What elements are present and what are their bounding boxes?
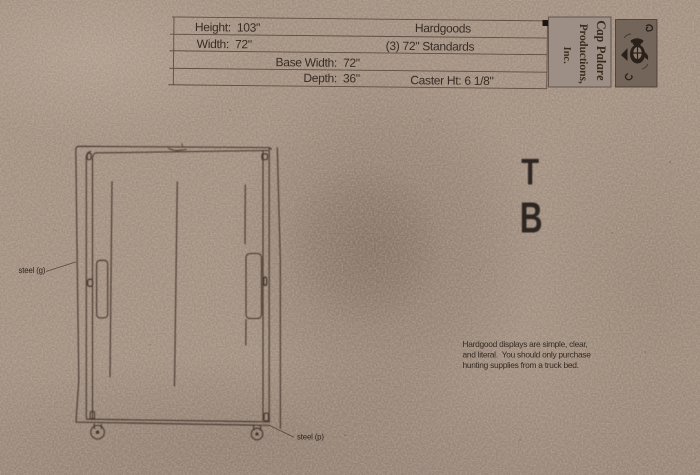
svg-text:Hardgood displays are simple,: Hardgood displays are simple, clear, [463, 339, 588, 349]
svg-text:B: B [520, 193, 543, 242]
svg-text:hunting supplies from a truck: hunting supplies from a truck bed. [463, 360, 579, 370]
svg-text:Cap Palare: Cap Palare [594, 19, 609, 82]
svg-text:steel (p): steel (p) [297, 432, 324, 441]
svg-text:Hardgoods: Hardgoods [415, 21, 471, 36]
svg-text:Productions,: Productions, [577, 23, 589, 85]
svg-text:Caster Ht: 6 1/8": Caster Ht: 6 1/8" [410, 73, 493, 88]
svg-text:and literal. You should only: and literal. You should only purchase [463, 350, 592, 360]
svg-text:T: T [521, 152, 539, 193]
svg-text:Height: 103": Height: 103" [195, 20, 260, 35]
svg-text:Base Width: 72": Base Width: 72" [275, 55, 359, 70]
svg-text:Depth: 36": Depth: 36" [303, 71, 360, 86]
svg-text:steel (g): steel (g) [19, 266, 46, 275]
svg-text:Width: 72": Width: 72" [197, 37, 252, 52]
svg-text:(3) 72" Standards: (3) 72" Standards [386, 39, 475, 54]
svg-text:Inc.: Inc. [561, 45, 572, 65]
